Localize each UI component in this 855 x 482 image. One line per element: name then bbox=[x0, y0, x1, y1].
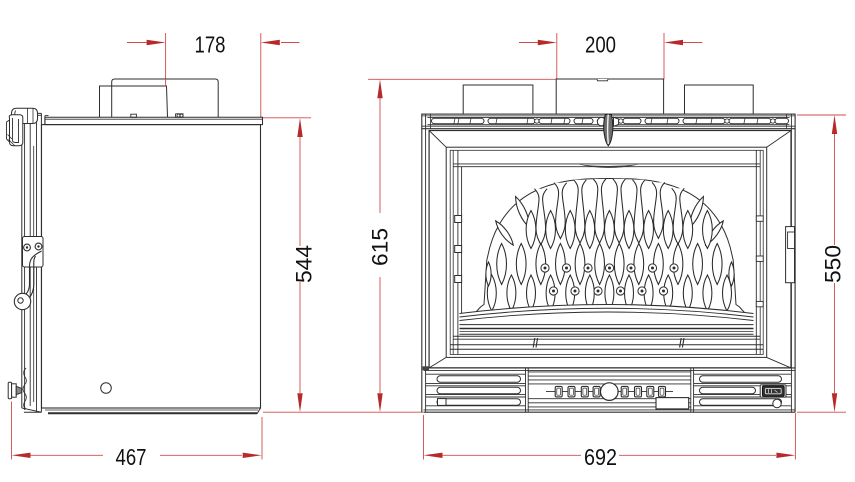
svg-text:467: 467 bbox=[116, 444, 147, 470]
svg-text:692: 692 bbox=[584, 444, 617, 470]
svg-text:544: 544 bbox=[292, 245, 317, 283]
svg-text:200: 200 bbox=[585, 32, 616, 58]
svg-text:178: 178 bbox=[195, 32, 226, 58]
svg-text:615: 615 bbox=[368, 228, 393, 266]
svg-text:550: 550 bbox=[821, 245, 846, 283]
